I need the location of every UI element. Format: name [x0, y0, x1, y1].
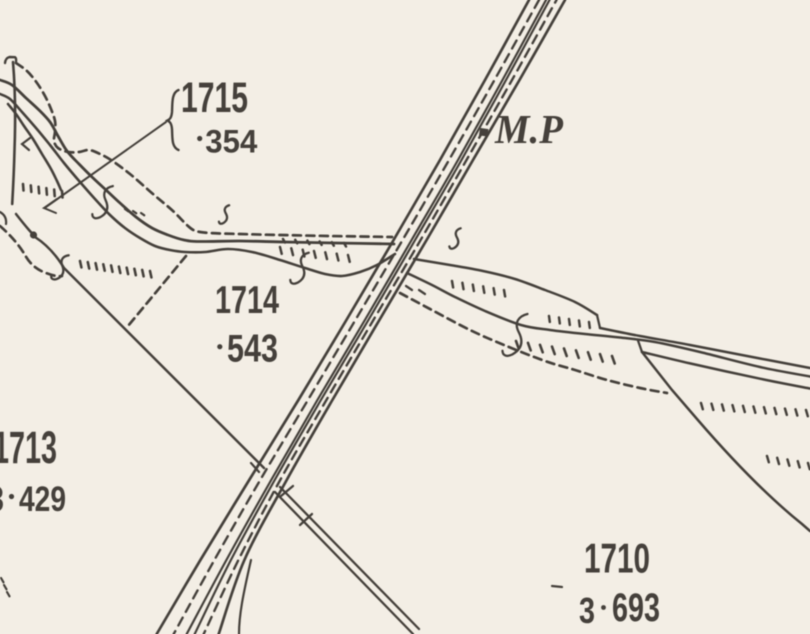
- svg-text:429: 429: [19, 480, 66, 519]
- svg-text:1710: 1710: [584, 535, 650, 582]
- svg-text:1715: 1715: [181, 74, 248, 122]
- svg-text:3: 3: [579, 590, 595, 631]
- svg-text:354: 354: [205, 124, 257, 160]
- svg-text:1713: 1713: [0, 422, 57, 473]
- svg-text:1714: 1714: [215, 279, 279, 322]
- svg-text:693: 693: [612, 586, 660, 630]
- svg-text:543: 543: [227, 328, 278, 371]
- svg-text:3: 3: [0, 480, 4, 519]
- svg-text:M.P: M.P: [494, 106, 564, 152]
